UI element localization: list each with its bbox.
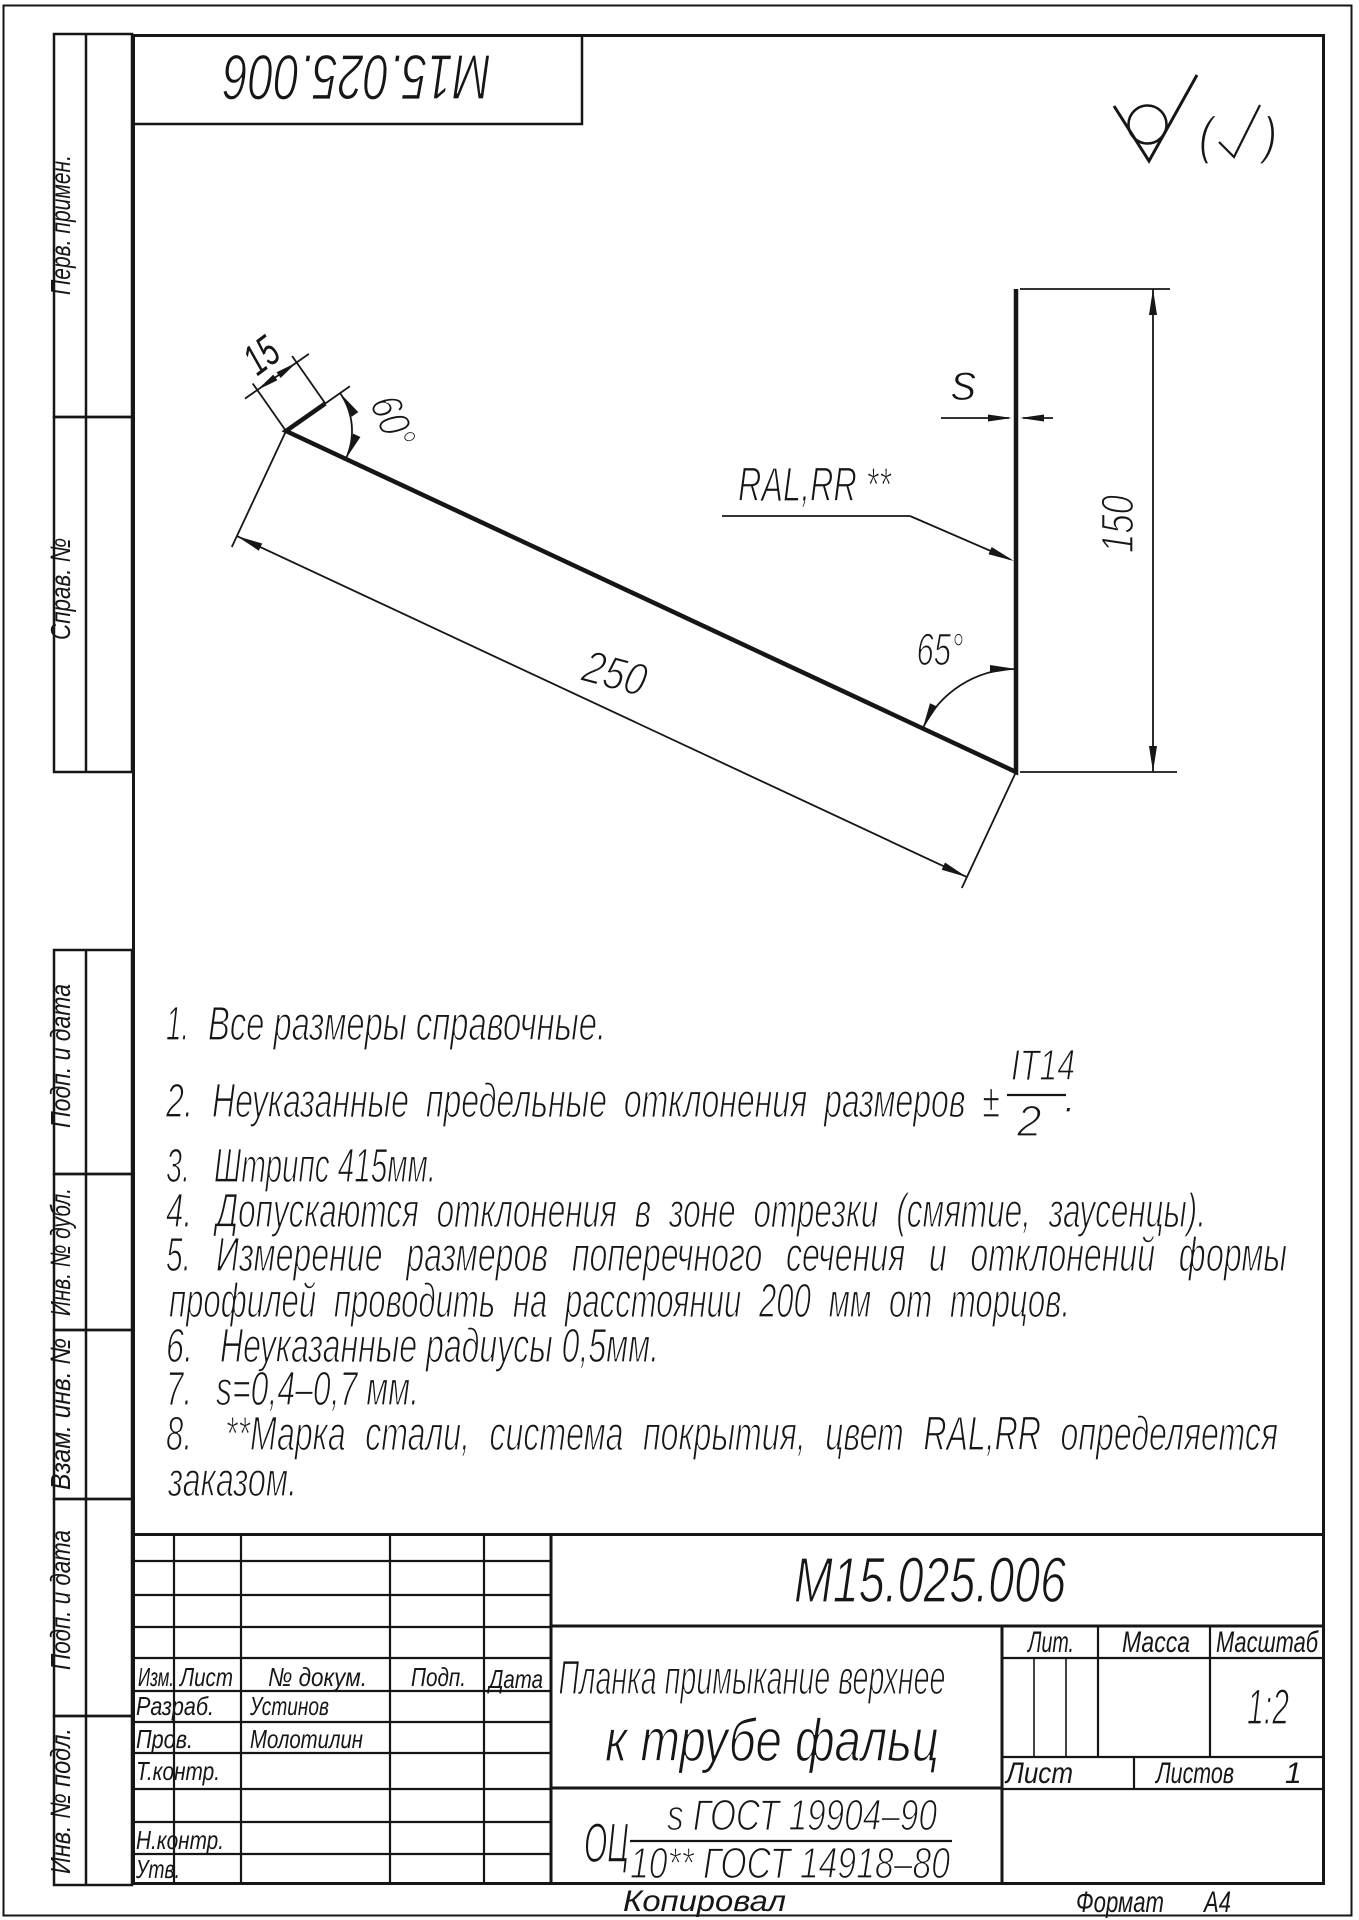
svg-text:к трубе фальц: к трубе фальц bbox=[605, 1707, 939, 1774]
svg-text:150: 150 bbox=[1092, 495, 1143, 553]
svg-text:Пров.: Пров. bbox=[136, 1724, 193, 1754]
svg-text:): ) bbox=[1258, 107, 1277, 165]
svg-text:Лит.: Лит. bbox=[1027, 1626, 1074, 1659]
svg-text:Молотилин: Молотилин bbox=[250, 1724, 363, 1754]
svg-text:Масштаб: Масштаб bbox=[1216, 1626, 1319, 1659]
svg-text:.: . bbox=[1064, 1073, 1076, 1122]
svg-text:1: 1 bbox=[1285, 1757, 1302, 1790]
svg-text:(: ( bbox=[1199, 107, 1217, 165]
svg-text:Подп. и дата: Подп. и дата bbox=[45, 1530, 76, 1670]
svg-text:Взам. инв. №: Взам. инв. № bbox=[45, 1338, 76, 1490]
svg-text:М15.025.006: М15.025.006 bbox=[223, 41, 491, 113]
svg-text:А4: А4 bbox=[1203, 1886, 1231, 1919]
svg-text:Инв. № подл.: Инв. № подл. bbox=[45, 1728, 76, 1874]
svg-text:Копировал: Копировал bbox=[623, 1885, 786, 1918]
svg-text:Формат: Формат bbox=[1076, 1886, 1164, 1919]
svg-text:60°: 60° bbox=[360, 388, 425, 455]
svg-text:Лист: Лист bbox=[178, 1662, 233, 1692]
svg-text:250: 250 bbox=[577, 639, 653, 706]
svg-text:Утв.: Утв. bbox=[135, 1854, 180, 1884]
svg-text:Справ. №: Справ. № bbox=[45, 538, 76, 640]
svg-text:1:2: 1:2 bbox=[1247, 1679, 1289, 1735]
svg-text:Масса: Масса bbox=[1122, 1626, 1190, 1659]
svg-text:Все размеры справочные.: Все размеры справочные. bbox=[208, 998, 606, 1051]
svg-text:2: 2 bbox=[1016, 1097, 1041, 1146]
svg-text:Листов: Листов bbox=[1155, 1757, 1234, 1790]
svg-text:Инв. № дубл.: Инв. № дубл. bbox=[45, 1188, 76, 1316]
svg-text:ОЦ: ОЦ bbox=[584, 1811, 629, 1874]
svg-text:Планка примыкание верхнее: Планка примыкание верхнее bbox=[559, 1652, 946, 1705]
svg-text:заказом.: заказом. bbox=[167, 1454, 297, 1507]
svg-text:s ГОСТ 19904–90: s ГОСТ 19904–90 bbox=[667, 1791, 937, 1840]
svg-text:Подп.: Подп. bbox=[411, 1662, 466, 1692]
svg-text:Изм.: Изм. bbox=[138, 1662, 174, 1692]
svg-text:Т.контр.: Т.контр. bbox=[136, 1756, 220, 1786]
svg-text:s: s bbox=[951, 354, 977, 412]
svg-text:Н.контр.: Н.контр. bbox=[136, 1825, 224, 1855]
svg-text:65°: 65° bbox=[917, 624, 964, 675]
svg-text:2.: 2. bbox=[165, 1075, 193, 1128]
svg-text:10** ГОСТ 14918–80: 10** ГОСТ 14918–80 bbox=[630, 1839, 950, 1888]
svg-text:Разраб.: Разраб. bbox=[136, 1691, 214, 1721]
svg-text:№ докум.: № докум. bbox=[268, 1662, 367, 1692]
svg-text:RAL,RR **: RAL,RR ** bbox=[738, 459, 892, 512]
svg-text:Дата: Дата bbox=[487, 1664, 543, 1694]
svg-text:Лист: Лист bbox=[1004, 1757, 1073, 1790]
svg-text:Подп. и дата: Подп. и дата bbox=[45, 984, 76, 1128]
svg-text:Перв. примен.: Перв. примен. bbox=[45, 155, 76, 295]
svg-text:Устинов: Устинов bbox=[249, 1691, 329, 1721]
svg-text:1.: 1. bbox=[166, 998, 189, 1051]
svg-text:**Марка стали, система покрыти: **Марка стали, система покрытия, цвет RA… bbox=[225, 1408, 1278, 1461]
svg-text:М15.025.006: М15.025.006 bbox=[794, 1544, 1066, 1616]
svg-text:Неуказанные предельные отклоне: Неуказанные предельные отклонения размер… bbox=[212, 1075, 1000, 1128]
